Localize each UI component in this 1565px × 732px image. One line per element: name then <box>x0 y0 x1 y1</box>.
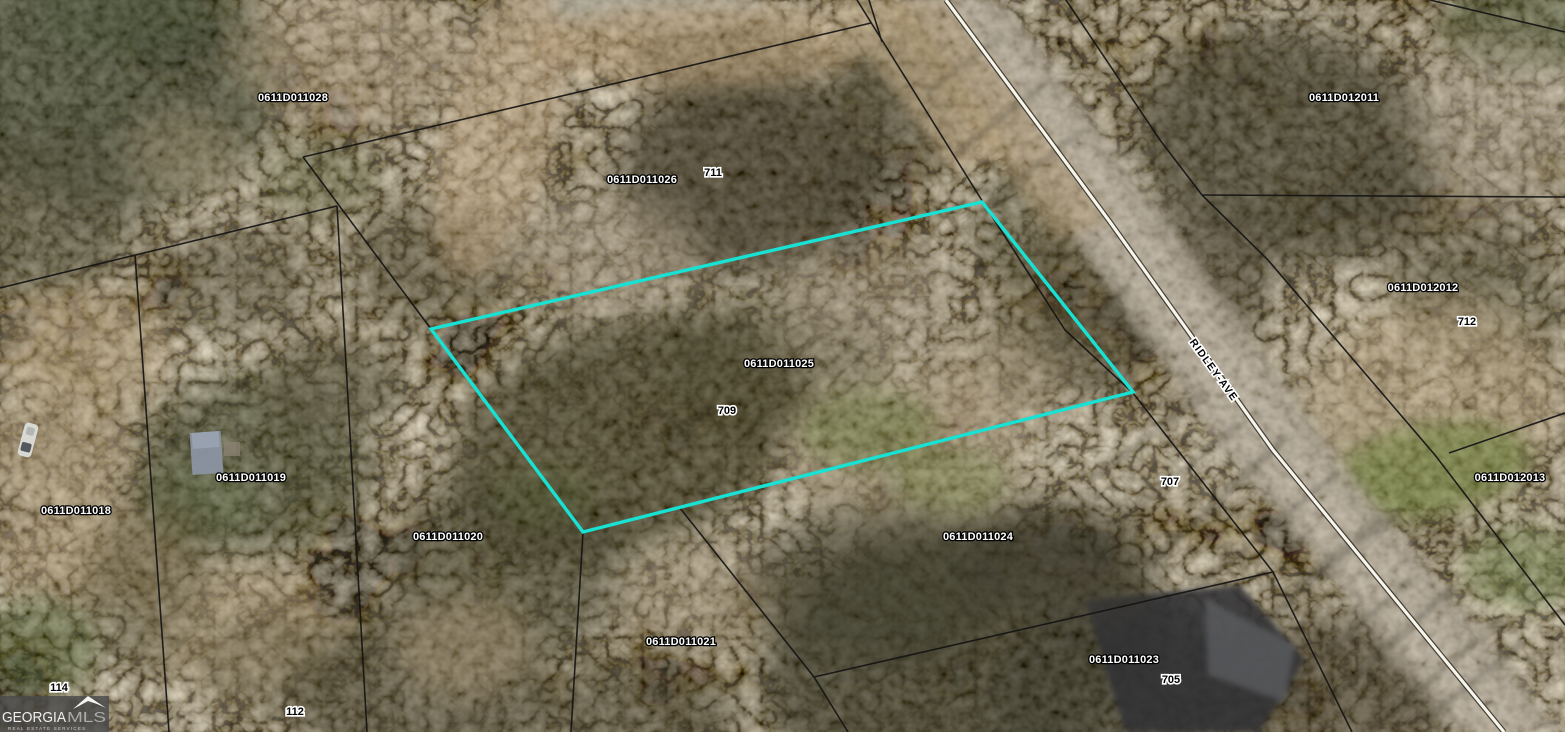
svg-text:0611D011025: 0611D011025 <box>744 358 814 370</box>
svg-text:0611D011018: 0611D011018 <box>41 505 111 517</box>
svg-text:0611D011020: 0611D011020 <box>413 531 483 543</box>
svg-text:709: 709 <box>718 405 736 417</box>
svg-text:MLS: MLS <box>67 709 106 726</box>
svg-text:REAL ESTATE SERVICES: REAL ESTATE SERVICES <box>8 726 86 731</box>
svg-text:0611D011024: 0611D011024 <box>943 531 1014 543</box>
svg-text:0611D011023: 0611D011023 <box>1089 654 1159 666</box>
svg-text:0611D011021: 0611D011021 <box>646 636 716 648</box>
svg-text:GEORGIA: GEORGIA <box>2 709 66 726</box>
svg-text:711: 711 <box>704 167 722 179</box>
svg-text:112: 112 <box>286 706 304 718</box>
svg-text:0611D011028: 0611D011028 <box>258 92 328 104</box>
svg-text:114: 114 <box>50 682 69 694</box>
svg-text:0611D011026: 0611D011026 <box>607 174 677 186</box>
svg-text:712: 712 <box>1458 316 1476 328</box>
svg-text:707: 707 <box>1161 476 1179 488</box>
svg-text:0611D012012: 0611D012012 <box>1388 282 1459 294</box>
svg-text:0611D012011: 0611D012011 <box>1309 92 1379 104</box>
svg-text:705: 705 <box>1162 674 1180 686</box>
svg-text:0611D012013: 0611D012013 <box>1475 472 1546 484</box>
svg-text:0611D011019: 0611D011019 <box>216 472 286 484</box>
